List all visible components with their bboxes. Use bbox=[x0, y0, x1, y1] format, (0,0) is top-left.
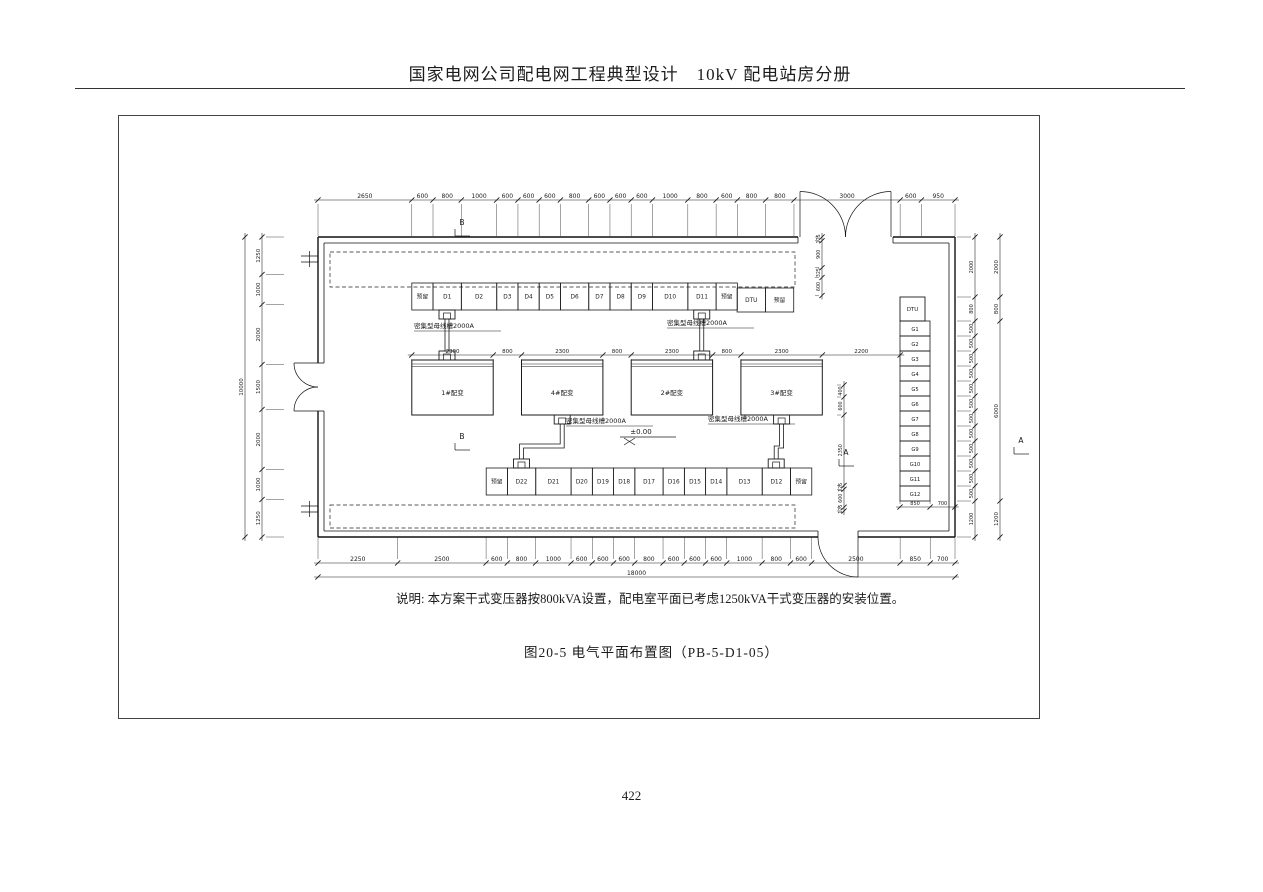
section-marker-a: A bbox=[843, 448, 849, 457]
dim-label: 700 bbox=[938, 501, 948, 507]
dim-label: 600 bbox=[523, 193, 535, 200]
cabinet-label: D15 bbox=[689, 480, 701, 486]
dim-label: 800 bbox=[502, 349, 513, 355]
dim-label: 500 bbox=[969, 399, 975, 409]
dim-label: 1200 bbox=[969, 513, 975, 526]
dim-label: 2650 bbox=[357, 193, 372, 200]
dim-label: 1000 bbox=[256, 282, 262, 296]
dim-label: 2250 bbox=[350, 556, 365, 563]
cabinet-label: D3 bbox=[503, 295, 511, 301]
dim-label: 2200 bbox=[854, 349, 868, 355]
dim-label: 6000 bbox=[994, 404, 1000, 418]
cabinet-label: D4 bbox=[525, 295, 533, 301]
dim-label: 2000 bbox=[256, 327, 262, 341]
dim-label: 125 bbox=[838, 483, 844, 492]
cabinet-label: 预留 bbox=[491, 478, 503, 486]
busbar-duct-label: 密集型母线槽2000A bbox=[566, 416, 627, 425]
dim-label: 125 bbox=[838, 505, 844, 514]
header-title: 国家电网公司配电网工程典型设计 10kV 配电站房分册 bbox=[409, 65, 852, 84]
section-marker-a: A bbox=[1018, 436, 1024, 445]
cabinet-label: D1 bbox=[443, 295, 451, 301]
busbar-connector bbox=[694, 351, 710, 360]
cabinet-label: G3 bbox=[911, 357, 918, 363]
dim-label: 800 bbox=[569, 193, 581, 200]
cabinet-label: G8 bbox=[911, 432, 918, 438]
floor-plan-svg: 2650600800100060060060080060060060010008… bbox=[118, 115, 1040, 720]
dim-label: 600 bbox=[689, 556, 701, 563]
dim-label: 500 bbox=[969, 489, 975, 499]
cabinet-label: G11 bbox=[910, 477, 921, 483]
cabinet-label: D8 bbox=[617, 295, 625, 301]
busbar-connector bbox=[439, 310, 455, 319]
dim-label: 1250 bbox=[256, 511, 262, 525]
dim-label: 500 bbox=[969, 324, 975, 334]
section-marker-b: B bbox=[459, 432, 464, 441]
dim-label: 800 bbox=[771, 556, 783, 563]
transformer-2 bbox=[522, 360, 603, 415]
dim-label: 500 bbox=[969, 339, 975, 349]
dim-label: 1000 bbox=[737, 556, 752, 563]
dim-label: 800 bbox=[516, 556, 528, 563]
transformer-label: 3#配变 bbox=[770, 388, 793, 397]
transformer-label: 4#配变 bbox=[551, 388, 574, 397]
dim-label: 950 bbox=[932, 193, 944, 200]
dim-label: 600 bbox=[795, 556, 807, 563]
cabinet-label: D2 bbox=[475, 295, 483, 301]
dim-label: 800 bbox=[994, 303, 1000, 314]
dim-label: 2500 bbox=[848, 556, 863, 563]
busbar-connector bbox=[773, 462, 780, 468]
dim-label: 2500 bbox=[434, 556, 449, 563]
dim-label: 800 bbox=[696, 193, 708, 200]
dim-label: 500 bbox=[969, 429, 975, 439]
cabinet-label: D14 bbox=[710, 480, 722, 486]
dim-label: 325 bbox=[816, 268, 822, 277]
busbar-connector bbox=[559, 418, 566, 424]
busbar-connector bbox=[518, 462, 525, 468]
cabinet-label: D18 bbox=[618, 480, 630, 486]
dim-label: 2300 bbox=[665, 349, 679, 355]
dim-label: 800 bbox=[643, 556, 655, 563]
dim-label: 600 bbox=[576, 556, 588, 563]
dim-label: 600 bbox=[417, 193, 429, 200]
dim-label: 10000 bbox=[239, 378, 245, 396]
cabinet-label: D10 bbox=[664, 295, 676, 301]
cabinet-label: D11 bbox=[696, 295, 708, 301]
dim-label: 1000 bbox=[256, 477, 262, 491]
dim-label: 600 bbox=[838, 401, 844, 410]
level-mark: ±0.00 bbox=[630, 428, 651, 436]
cabinet-label: 预留 bbox=[795, 478, 807, 486]
cabinet-label: DTU bbox=[907, 307, 919, 313]
busbar-duct-label: 密集型母线槽2000A bbox=[667, 318, 728, 327]
cabinet-label: 预留 bbox=[721, 293, 733, 301]
cabinet-label: D13 bbox=[739, 480, 751, 486]
document-page: 国家电网公司配电网工程典型设计 10kV 配电站房分册 bbox=[0, 0, 1263, 892]
dim-label: 2300 bbox=[775, 349, 789, 355]
wall-outer bbox=[318, 237, 955, 537]
dim-label: 2000 bbox=[969, 261, 975, 274]
dim-label: 700 bbox=[937, 556, 949, 563]
dim-label: 600 bbox=[491, 556, 503, 563]
drawing-frame: 2650600800100060060060080060060060010008… bbox=[118, 115, 1040, 720]
dim-label: 600 bbox=[594, 193, 606, 200]
dim-label: 850 bbox=[909, 556, 921, 563]
dim-label: 800 bbox=[774, 193, 786, 200]
door-jambs bbox=[318, 237, 893, 537]
dim-label: 2000 bbox=[256, 432, 262, 446]
dim-label: 1500 bbox=[256, 380, 262, 394]
page-header: 国家电网公司配电网工程典型设计 10kV 配电站房分册 bbox=[75, 60, 1185, 85]
dim-label: 1000 bbox=[662, 193, 677, 200]
cabinet-label: D16 bbox=[668, 480, 680, 486]
dim-label: 1000 bbox=[471, 193, 486, 200]
cabinet-label: G10 bbox=[910, 462, 921, 468]
dim-label: 400 bbox=[838, 386, 844, 395]
dim-label: 18000 bbox=[627, 570, 646, 577]
cabinet-label: G2 bbox=[911, 342, 918, 348]
dim-label: 900 bbox=[816, 250, 822, 259]
dim-label: 125 bbox=[816, 234, 822, 243]
transformer-1 bbox=[412, 360, 493, 415]
cabinet-label: G5 bbox=[911, 387, 918, 393]
dim-label: 3000 bbox=[839, 193, 854, 200]
dim-label: 600 bbox=[816, 282, 822, 291]
transformer-label: 1#配变 bbox=[441, 388, 464, 397]
busbar-duct bbox=[774, 424, 779, 459]
cabinet-label: D22 bbox=[516, 480, 528, 486]
header-rule bbox=[75, 88, 1185, 89]
cabinet-label: G6 bbox=[911, 402, 918, 408]
busbar-duct bbox=[524, 424, 565, 459]
dim-label: 850 bbox=[910, 501, 920, 507]
dim-label: 800 bbox=[969, 304, 975, 314]
dim-label: 500 bbox=[969, 459, 975, 469]
transformer-4 bbox=[741, 360, 822, 415]
dim-label: 500 bbox=[969, 384, 975, 394]
cabinet-label: D20 bbox=[576, 480, 588, 486]
dim-label: 600 bbox=[710, 556, 722, 563]
cabinet-label: D17 bbox=[643, 480, 655, 486]
dim-label: 1000 bbox=[546, 556, 561, 563]
busbar-connector bbox=[694, 310, 710, 319]
dim-label: 600 bbox=[668, 556, 680, 563]
busbar-duct bbox=[778, 424, 783, 459]
dim-label: 500 bbox=[969, 414, 975, 424]
transformer-label: 2#配变 bbox=[661, 388, 684, 397]
cabinet-label: 预留 bbox=[417, 293, 429, 301]
dim-label: 500 bbox=[969, 474, 975, 484]
cabinet-label: D7 bbox=[595, 295, 603, 301]
dim-label: 2000 bbox=[994, 260, 1000, 274]
cabinet-label: G12 bbox=[910, 492, 921, 498]
busbar-connector bbox=[514, 459, 530, 468]
transformer-3 bbox=[631, 360, 712, 415]
busbar-duct bbox=[520, 424, 561, 459]
cabinet-label: D5 bbox=[546, 295, 554, 301]
dim-label: 600 bbox=[618, 556, 630, 563]
page-number: 422 bbox=[0, 788, 1263, 804]
dim-label: 800 bbox=[441, 193, 453, 200]
dim-label: 600 bbox=[597, 556, 609, 563]
dim-label: 600 bbox=[721, 193, 733, 200]
cabinet-label: D12 bbox=[770, 480, 782, 486]
cabinet-label: D19 bbox=[597, 480, 609, 486]
dim-label: 1250 bbox=[256, 248, 262, 262]
section-marker-b: B bbox=[459, 218, 464, 227]
dim-label: 1200 bbox=[994, 512, 1000, 526]
wall-inner bbox=[324, 243, 949, 531]
wall-vent-symbols bbox=[301, 251, 318, 517]
dim-label: 600 bbox=[615, 193, 627, 200]
busbar-duct-label: 密集型母线槽2000A bbox=[708, 414, 769, 423]
busbar-connector bbox=[774, 415, 790, 424]
cabinet-label: G1 bbox=[911, 327, 918, 333]
dim-label: 800 bbox=[722, 349, 733, 355]
dim-label: 600 bbox=[544, 193, 556, 200]
dim-label: 500 bbox=[969, 444, 975, 454]
dim-label: 500 bbox=[969, 369, 975, 379]
drawing-note: 说明: 本方案干式变压器按800kVA设置，配电室平面已考虑1250kVA干式变… bbox=[396, 588, 904, 607]
dim-label: 600 bbox=[838, 494, 844, 503]
busbar-connector bbox=[444, 313, 451, 319]
cabinet-label: D9 bbox=[638, 295, 646, 301]
figure-caption: 图20-5 电气平面布置图（PB-5-D1-05） bbox=[524, 641, 779, 661]
dim-label: 600 bbox=[502, 193, 514, 200]
busbar-connector bbox=[778, 418, 785, 424]
left-double-door bbox=[294, 363, 318, 411]
dim-label: 800 bbox=[612, 349, 623, 355]
cabinet-label: 预留 bbox=[774, 296, 786, 304]
busbar-duct-label: 密集型母线槽2000A bbox=[414, 321, 475, 330]
busbar-connector bbox=[768, 459, 784, 468]
dim-label: 500 bbox=[969, 354, 975, 364]
dim-label: 600 bbox=[905, 193, 917, 200]
cabinet-label: G4 bbox=[911, 372, 919, 378]
dim-label: 2300 bbox=[555, 349, 569, 355]
cabinet-label: D21 bbox=[548, 480, 560, 486]
cabinet-label: G9 bbox=[911, 447, 918, 453]
cabinet-label: D6 bbox=[571, 295, 579, 301]
cabinet-label: DTU bbox=[745, 298, 757, 304]
cabinet-label: G7 bbox=[911, 417, 918, 423]
dim-label: 800 bbox=[746, 193, 758, 200]
dim-label: 600 bbox=[636, 193, 648, 200]
